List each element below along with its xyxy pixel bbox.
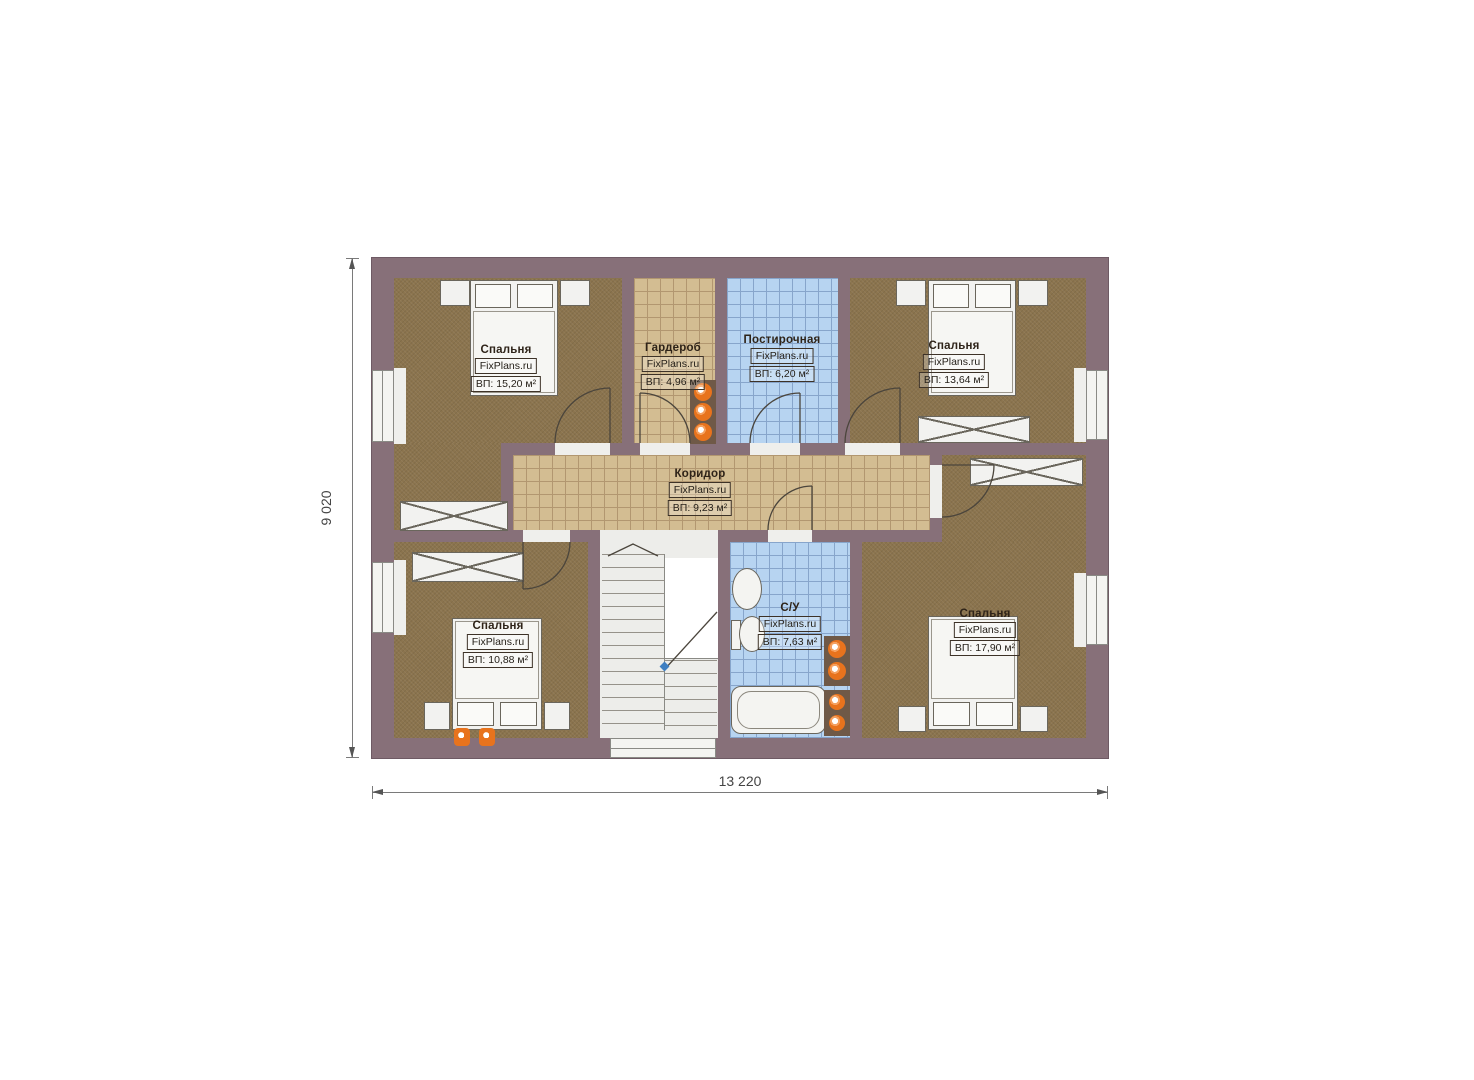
watermark: FixPlans.ru	[669, 482, 732, 498]
room-label-bedroom-top-right: Спальня FixPlans.ru ВП: 13,64 м²	[919, 340, 989, 388]
room-name: Коридор	[668, 468, 732, 480]
door-bathroom	[768, 486, 812, 530]
watermark: FixPlans.ru	[954, 622, 1017, 638]
room-label-bedroom-bottom-right: Спальня FixPlans.ru ВП: 17,90 м²	[950, 608, 1020, 656]
door-wardrobe	[640, 393, 690, 443]
door-swing-layer	[372, 258, 1108, 758]
dimension-horizontal: 13 220	[372, 782, 1108, 802]
room-label-wardrobe: Гардероб FixPlans.ru ВП: 4,96 м²	[641, 342, 705, 390]
room-name: Спальня	[463, 620, 533, 632]
room-name: Постирочная	[744, 334, 821, 346]
room-name: Гардероб	[641, 342, 705, 354]
room-area: ВП: 13,64 м²	[919, 372, 989, 388]
dimension-width-label: 13 220	[711, 773, 770, 789]
door-bedroom-top-right	[845, 388, 900, 443]
room-label-laundry: Постирочная FixPlans.ru ВП: 6,20 м²	[744, 334, 821, 382]
room-name: С/У	[758, 602, 822, 614]
stair-break-line	[664, 612, 717, 670]
door-laundry	[750, 393, 800, 443]
room-area: ВП: 4,96 м²	[641, 374, 705, 390]
floor-plan: Спальня FixPlans.ru ВП: 15,20 м² Гардеро…	[372, 258, 1108, 758]
room-area: ВП: 17,90 м²	[950, 640, 1020, 656]
dimension-line	[372, 792, 1108, 793]
watermark: FixPlans.ru	[467, 634, 530, 650]
stair-marker	[660, 662, 670, 672]
door-bedroom-top-left	[555, 388, 610, 443]
room-area: ВП: 10,88 м²	[463, 652, 533, 668]
room-name: Спальня	[919, 340, 989, 352]
door-bedroom-bottom-left	[523, 542, 570, 589]
door-bedroom-bottom-right	[942, 465, 994, 517]
room-label-bedroom-top-left: Спальня FixPlans.ru ВП: 15,20 м²	[471, 344, 541, 392]
room-area: ВП: 15,20 м²	[471, 376, 541, 392]
room-area: ВП: 7,63 м²	[758, 634, 822, 650]
watermark: FixPlans.ru	[642, 356, 705, 372]
room-area: ВП: 9,23 м²	[668, 500, 732, 516]
watermark: FixPlans.ru	[759, 616, 822, 632]
dimension-height-label: 9 020	[318, 490, 334, 525]
room-area: ВП: 6,20 м²	[750, 366, 814, 382]
dimension-arrow-down	[349, 747, 355, 758]
dimension-arrow-left	[372, 789, 383, 795]
watermark: FixPlans.ru	[751, 348, 814, 364]
room-label-bedroom-bottom-left: Спальня FixPlans.ru ВП: 10,88 м²	[463, 620, 533, 668]
room-label-bathroom: С/У FixPlans.ru ВП: 7,63 м²	[758, 602, 822, 650]
watermark: FixPlans.ru	[923, 354, 986, 370]
room-name: Спальня	[471, 344, 541, 356]
room-name: Спальня	[950, 608, 1020, 620]
watermark: FixPlans.ru	[475, 358, 538, 374]
floor-plan-canvas: Спальня FixPlans.ru ВП: 15,20 м² Гардеро…	[0, 0, 1474, 1080]
dimension-vertical: 9 020	[342, 258, 362, 758]
stair-direction-arrow	[608, 544, 658, 556]
dimension-arrow-right	[1097, 789, 1108, 795]
dimension-arrow-up	[349, 258, 355, 269]
room-label-corridor: Коридор FixPlans.ru ВП: 9,23 м²	[668, 468, 732, 516]
dimension-line	[352, 258, 353, 758]
